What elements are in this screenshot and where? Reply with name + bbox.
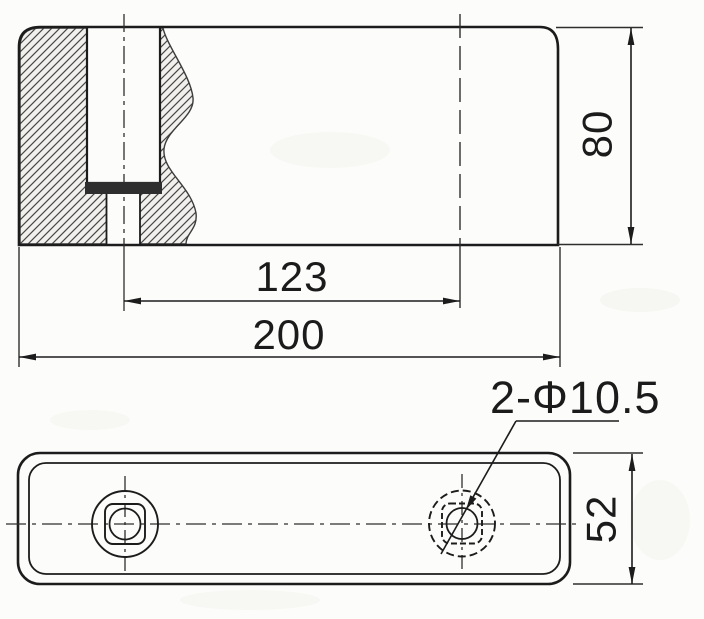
dimension-80: 80 [556, 28, 643, 245]
arrowhead-left [124, 298, 141, 305]
dim-80-value: 80 [574, 110, 621, 159]
dimension-52: 52 [573, 453, 643, 584]
plan-view: 2-Φ10.5 52 [6, 372, 661, 584]
arrowhead-bottom [629, 567, 636, 584]
arrowhead-left [19, 354, 36, 361]
dim-123-value: 123 [255, 253, 328, 300]
arrowhead-right [443, 298, 460, 305]
arrowhead-right [543, 354, 560, 361]
arrowhead-top [628, 28, 635, 45]
arrowhead-bottom [628, 227, 635, 244]
holes-label: 2-Φ10.5 [490, 372, 661, 423]
technical-drawing-sheet: 123 200 80 [0, 0, 704, 619]
drawing-canvas: 123 200 80 [0, 0, 704, 619]
dim-200-value: 200 [252, 311, 325, 358]
through-channel [107, 194, 141, 245]
dim-52-value: 52 [578, 495, 625, 544]
arrowhead-top [629, 454, 636, 471]
section-view: 123 200 80 [19, 14, 643, 367]
dimension-123: 123 [124, 253, 460, 304]
